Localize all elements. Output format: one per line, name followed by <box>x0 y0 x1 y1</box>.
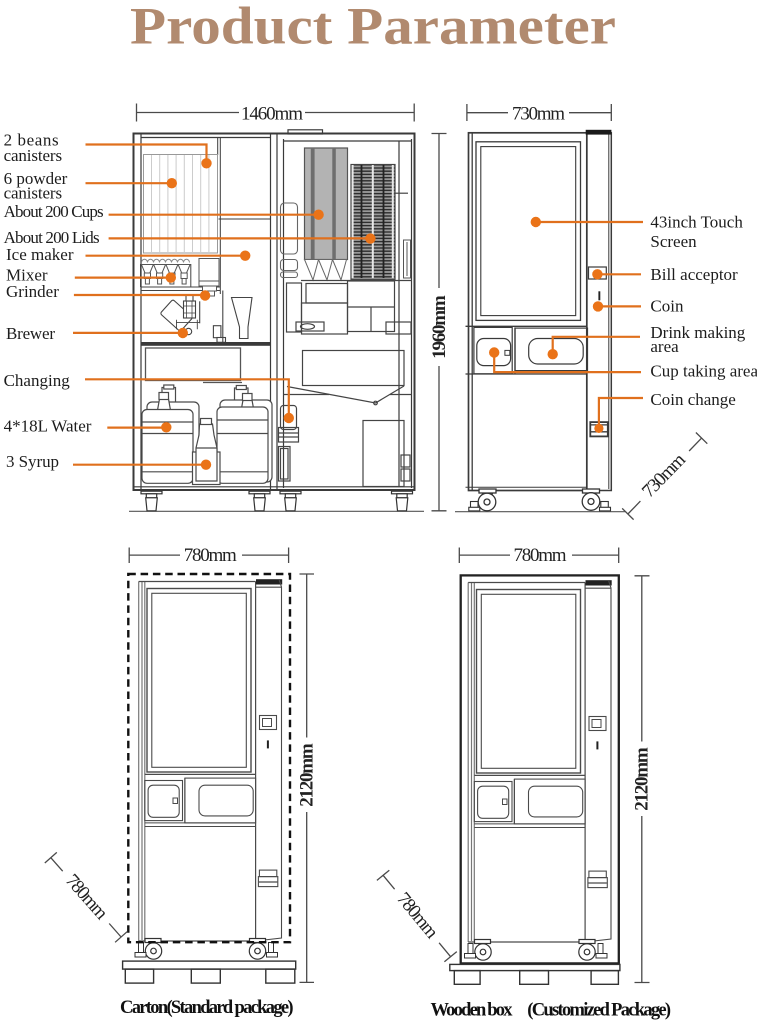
svg-text:3 Syrup: 3 Syrup <box>6 452 59 471</box>
svg-text:canisters: canisters <box>4 146 63 165</box>
svg-text:Ice maker: Ice maker <box>6 245 74 264</box>
svg-text:Product Parameter: Product Parameter <box>130 0 616 56</box>
svg-text:43inch Touch: 43inch Touch <box>650 212 743 231</box>
svg-text:Changing: Changing <box>4 371 71 390</box>
svg-text:area: area <box>650 337 679 356</box>
svg-text:Coin change: Coin change <box>650 390 735 409</box>
svg-text:canisters: canisters <box>4 183 63 202</box>
svg-text:Bill acceptor: Bill acceptor <box>650 265 738 284</box>
svg-text:1460mm: 1460mm <box>241 103 303 124</box>
svg-text:Cup taking area: Cup taking area <box>650 362 757 381</box>
svg-text:1960mm: 1960mm <box>429 295 450 359</box>
svg-text:Coin: Coin <box>650 296 684 315</box>
svg-text:Brewer: Brewer <box>6 324 55 343</box>
svg-text:Grinder: Grinder <box>6 282 59 301</box>
svg-text:780mm: 780mm <box>184 545 237 566</box>
svg-text:Screen: Screen <box>650 232 697 251</box>
svg-text:2120mm: 2120mm <box>296 743 317 807</box>
svg-text:730mm: 730mm <box>512 103 565 124</box>
svg-text:Wooden box: Wooden box <box>431 1001 514 1021</box>
svg-text:(Customized Package): (Customized Package) <box>527 1001 671 1021</box>
svg-text:Carton(Standard package): Carton(Standard package) <box>120 998 294 1018</box>
svg-text:4*18L Water: 4*18L Water <box>4 417 92 436</box>
svg-text:2120mm: 2120mm <box>632 747 653 811</box>
svg-text:780mm: 780mm <box>514 545 567 566</box>
svg-text:About 200 Cups: About 200 Cups <box>4 202 104 221</box>
